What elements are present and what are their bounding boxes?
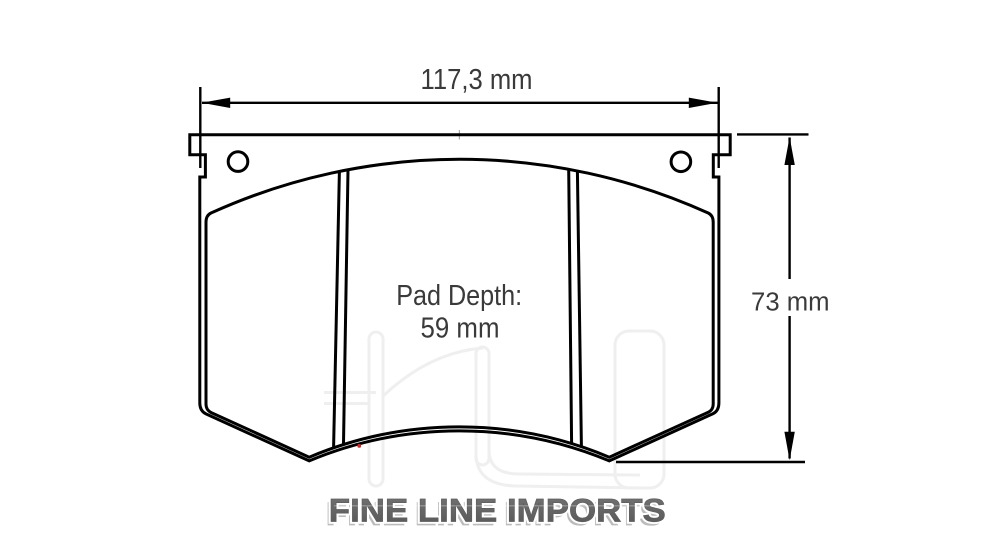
svg-text:Pad Depth:: Pad Depth: [396, 280, 522, 312]
svg-text:117,3 mm: 117,3 mm [421, 64, 533, 96]
svg-text:59 mm: 59 mm [421, 313, 500, 345]
svg-text:FINE LINE IMPORTS: FINE LINE IMPORTS [329, 492, 666, 528]
svg-text:73 mm: 73 mm [751, 287, 830, 317]
